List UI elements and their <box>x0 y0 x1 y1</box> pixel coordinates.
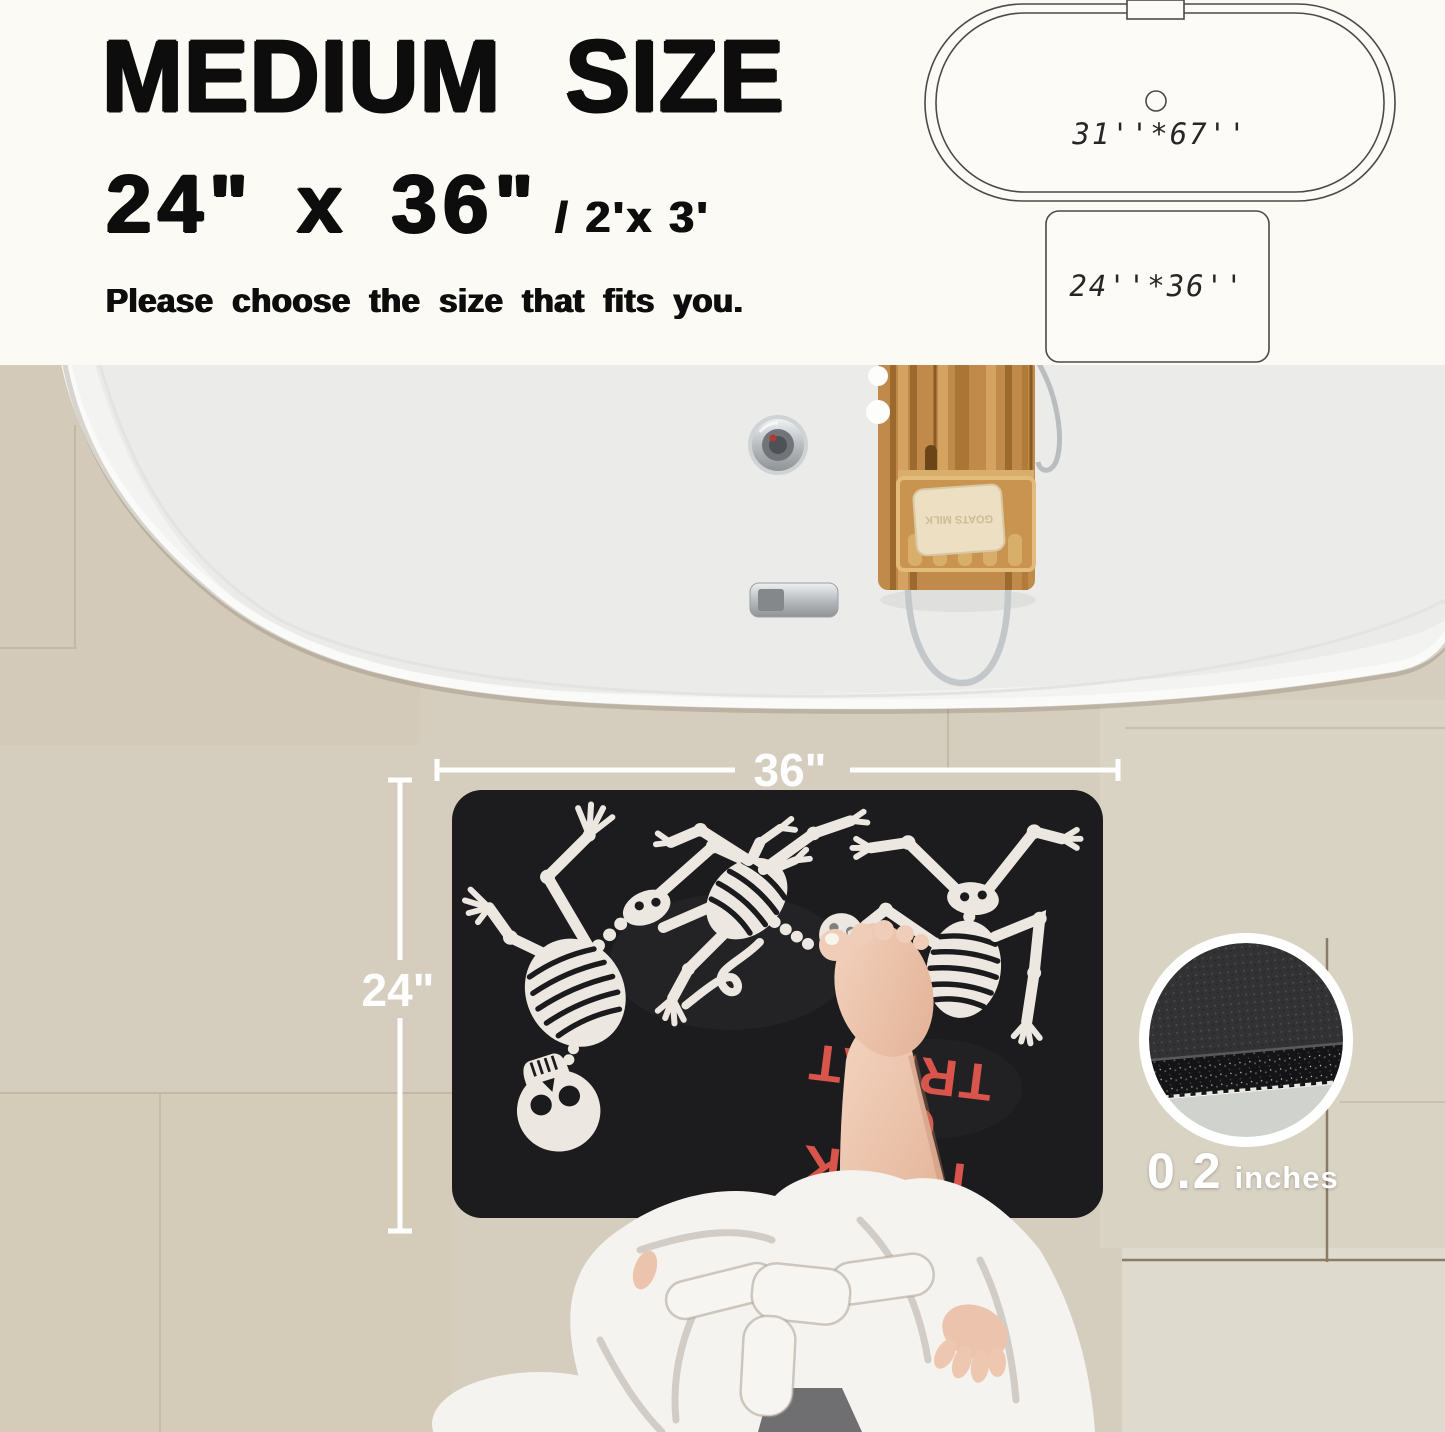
scene-illustration: 31''*67'' 24''*36'' <box>0 0 1445 1432</box>
soap-brand-label: GOATS MILK <box>925 512 993 525</box>
thickness-unit: inches <box>1235 1160 1339 1196</box>
height-dimension-label: 24" <box>362 964 435 1016</box>
tub-faucet-notch <box>1127 0 1184 19</box>
mat-outline-diagram: 24''*36'' <box>1046 211 1269 362</box>
thickness-callout: 0.2 inches <box>1147 1142 1339 1200</box>
glass-slot-cutout <box>866 400 890 424</box>
product-size-infographic: MEDIUM SIZE 24" x 36" / 2'x 3' Please ch… <box>0 0 1445 1432</box>
toenail <box>825 933 839 945</box>
thickness-value: 0.2 <box>1147 1142 1223 1200</box>
soap-bar: GOATS MILK <box>913 484 1005 556</box>
bath-mat: TRICK OR TREAT <box>452 790 1103 1218</box>
glass-slot-cutout <box>868 366 888 386</box>
overflow-plate <box>750 583 838 617</box>
tub-size-label: 31''*67'' <box>1071 117 1247 151</box>
mat-size-label: 24''*36'' <box>1069 269 1244 303</box>
width-dimension-label: 36" <box>754 744 827 796</box>
drain-knob <box>748 415 808 475</box>
tub-outline-diagram: 31''*67'' <box>925 0 1395 201</box>
